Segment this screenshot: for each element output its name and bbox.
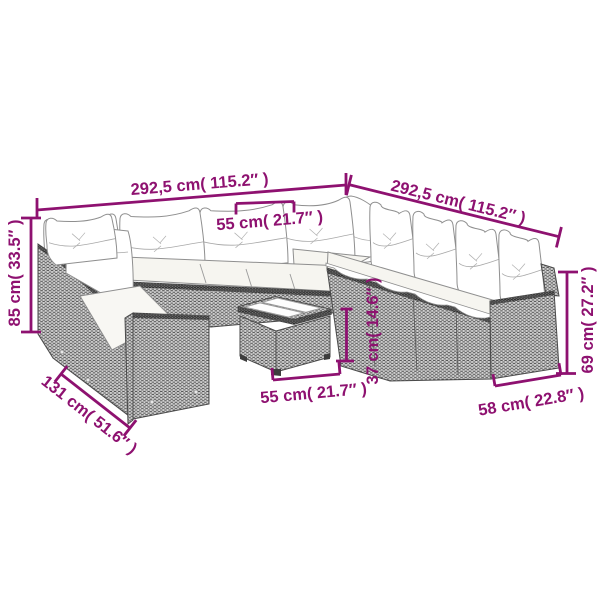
svg-text:37 cm( 14.6″ ): 37 cm( 14.6″ ) [364, 278, 382, 385]
svg-text:85 cm( 33.5″ ): 85 cm( 33.5″ ) [6, 220, 24, 327]
svg-text:69 cm( 27.2″ ): 69 cm( 27.2″ ) [579, 267, 597, 374]
